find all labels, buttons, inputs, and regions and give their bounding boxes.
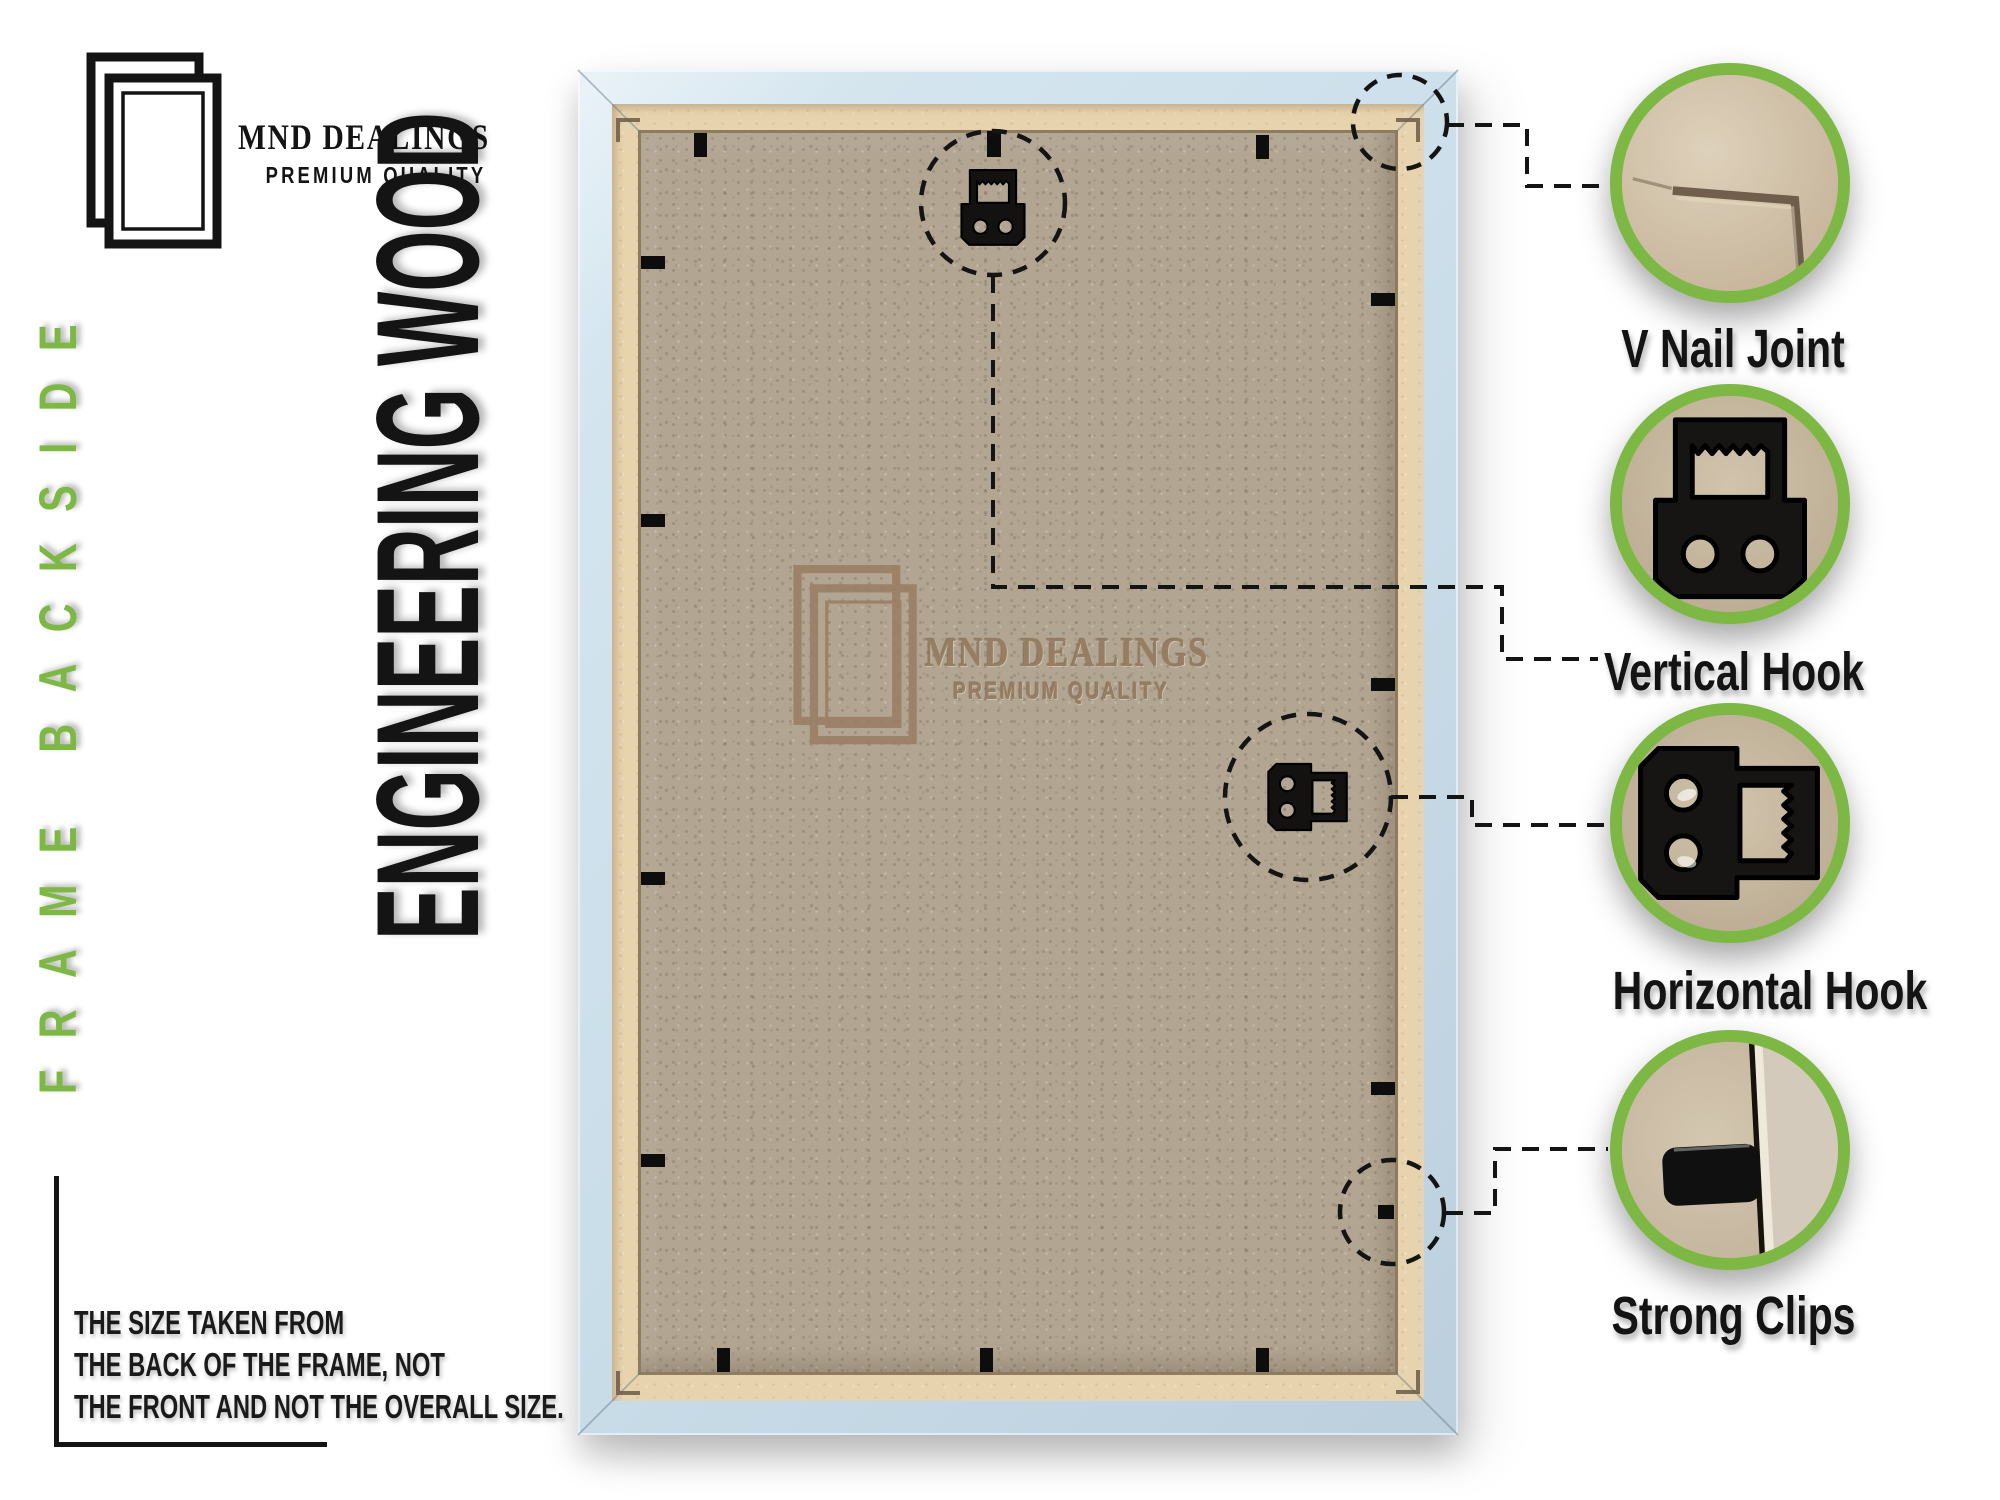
v-nail-groove-icon [1622,75,1838,291]
brand-logo-frames-icon [85,52,225,252]
vertical-hook-photo [1622,396,1838,612]
material-label: ENGINEERING WOOD [344,112,512,940]
callout-label-strong-clips: Strong Clips [1563,1285,1903,1347]
strong-clip-icon [1622,1042,1838,1258]
callout-label-text: Vertical Hook [1604,641,1864,703]
connector-v-nail [1447,125,1608,186]
note-line: THE SIZE TAKEN FROM [74,1302,564,1344]
note-line: THE BACK OF THE FRAME, NOT [74,1344,564,1386]
watermark-name: MND DEALINGS [925,628,1155,676]
note-line: THE FRONT AND NOT THE OVERALL SIZE. [74,1386,564,1428]
vertical-hook-icon [1622,396,1838,612]
callout-label-vertical-hook: Vertical Hook [1563,641,1903,703]
page-canvas: MND DEALINGS PREMIUM QUALITY FRAME BACKS… [0,0,2000,1500]
callout-circle-vertical-hook [1610,384,1850,624]
horizontal-hook-icon [1622,715,1838,931]
callout-label-v-nail-joint: V Nail Joint [1563,318,1903,380]
callout-circle-v-nail-joint [1610,63,1850,303]
side-label: FRAME BACKSIDE [28,293,89,1094]
connector-strong-clips [1446,1149,1608,1213]
callout-circle-strong-clips [1610,1030,1850,1270]
callout-label-text: V Nail Joint [1621,318,1844,380]
watermark-tagline: PREMIUM QUALITY [925,678,1197,706]
watermark-frames-icon [792,562,920,750]
watermark-tagline-text: PREMIUM QUALITY [953,678,1169,706]
callout-circle-horizontal-hook [1610,703,1850,943]
product-frame [578,70,1458,1435]
horizontal-hook-photo [1622,715,1838,931]
strong-clips-photo [1622,1042,1838,1258]
frame-backboard [641,133,1395,1372]
callout-label-horizontal-hook: Horizontal Hook [1563,960,1903,1022]
callout-label-text: Strong Clips [1611,1285,1855,1347]
note-text: THE SIZE TAKEN FROM THE BACK OF THE FRAM… [74,1302,754,1428]
v-nail-joint-photo [1622,75,1838,291]
callout-label-text: Horizontal Hook [1613,960,1928,1022]
